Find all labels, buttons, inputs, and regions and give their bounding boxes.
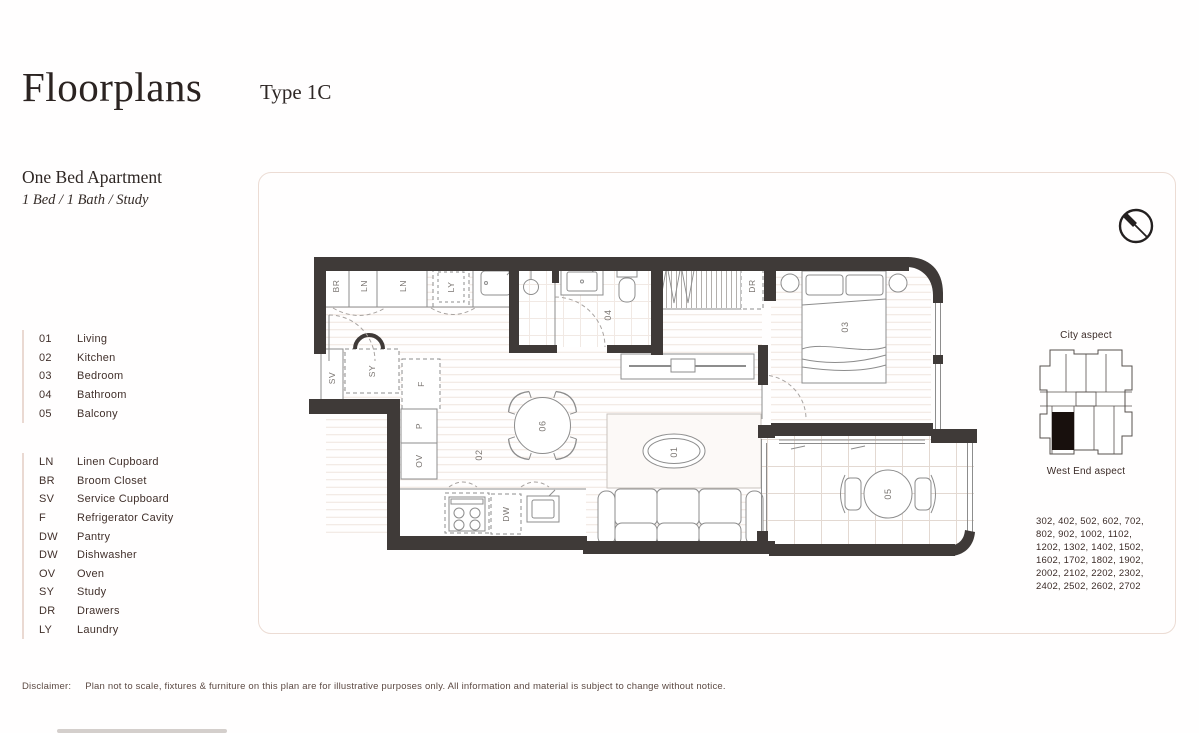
living-label: 01	[669, 446, 679, 457]
disclaimer: Disclaimer:Plan not to scale, fixtures &…	[22, 681, 726, 692]
legend-code: F	[39, 512, 77, 524]
legend-row: BRBroom Closet	[39, 472, 173, 491]
broom-label: BR	[331, 279, 341, 292]
legend-code: SV	[39, 493, 77, 505]
dishwasher-label: DW	[501, 506, 511, 521]
legend-code: DR	[39, 605, 77, 617]
legend-label: Oven	[77, 568, 104, 580]
legend-row: LYLaundry	[39, 620, 173, 639]
legend-row: DWPantry	[39, 527, 173, 546]
legend-row: 04Bathroom	[39, 386, 127, 405]
legend-code: 01	[39, 333, 77, 345]
floorplan-page: Floorplans Type 1C One Bed Apartment 1 B…	[0, 0, 1199, 733]
legend-code: DW	[39, 549, 77, 561]
fixture-legend: LNLinen Cupboard BRBroom Closet SVServic…	[22, 453, 173, 639]
disclaimer-label: Disclaimer:	[22, 681, 71, 692]
room-legend: 01Living 02Kitchen 03Bedroom 04Bathroom …	[22, 330, 127, 423]
kitchen-label: 02	[474, 449, 484, 460]
legend-code: BR	[39, 475, 77, 487]
linen-label: LN	[359, 280, 369, 292]
study-label: SY	[367, 365, 377, 378]
legend-label: Dishwasher	[77, 549, 137, 561]
legend-code: LY	[39, 624, 77, 636]
legend-label: Service Cupboard	[77, 493, 169, 505]
apartment-spec: 1 Bed / 1 Bath / Study	[22, 192, 148, 209]
legend-row: DWDishwasher	[39, 546, 173, 565]
drawers-label: DR	[747, 279, 757, 292]
fridge-label: F	[416, 381, 426, 387]
legend-label: Bathroom	[77, 389, 127, 401]
legend-row: 05Balcony	[39, 404, 127, 423]
laundry-label: LY	[446, 282, 456, 293]
balcony-label: 05	[883, 488, 893, 499]
north-compass-icon	[1115, 205, 1157, 247]
legend-row: 03Bedroom	[39, 367, 127, 386]
building-keyplan	[1036, 346, 1136, 458]
legend-label: Bedroom	[77, 370, 123, 382]
city-aspect-label: City aspect	[1021, 330, 1151, 341]
legend-row: LNLinen Cupboard	[39, 453, 173, 472]
plan-type: Type 1C	[260, 80, 331, 105]
legend-row: OVOven	[39, 565, 173, 584]
legend-label: Drawers	[77, 605, 120, 617]
plan-panel: BR LN LN LY SV SY F P OV 02 DW 04 DR 03 …	[258, 172, 1176, 634]
legend-code: 04	[39, 389, 77, 401]
linen-label: LN	[398, 280, 408, 292]
legend-label: Study	[77, 586, 106, 598]
legend-row: 02Kitchen	[39, 349, 127, 368]
legend-code: 02	[39, 352, 77, 364]
legend-row: FRefrigerator Cavity	[39, 509, 173, 528]
legend-row: DRDrawers	[39, 602, 173, 621]
dining-label: 06	[538, 420, 548, 431]
legend-row: SYStudy	[39, 583, 173, 602]
legend-label: Refrigerator Cavity	[77, 512, 173, 524]
legend-label: Pantry	[77, 531, 110, 543]
legend-row: SVService Cupboard	[39, 490, 173, 509]
legend-code: 05	[39, 408, 77, 420]
legend-code: DW	[39, 531, 77, 543]
legend-label: Linen Cupboard	[77, 456, 159, 468]
legend-label: Balcony	[77, 408, 118, 420]
pantry-label: P	[414, 423, 424, 429]
legend-code: 03	[39, 370, 77, 382]
apartment-numbers: 302, 402, 502, 602, 702, 802, 902, 1002,…	[1036, 515, 1156, 593]
footer-logo-sliver	[57, 729, 227, 733]
legend-label: Kitchen	[77, 352, 115, 364]
legend-label: Living	[77, 333, 107, 345]
legend-code: LN	[39, 456, 77, 468]
highlighted-unit	[1052, 412, 1074, 450]
legend-code: OV	[39, 568, 77, 580]
service-label: SV	[327, 372, 337, 385]
west-end-aspect-label: West End aspect	[1011, 466, 1161, 477]
legend-row: 01Living	[39, 330, 127, 349]
oven-label: OV	[414, 454, 424, 467]
floorplan-svg: BR LN LN LY SV SY F P OV 02 DW 04 DR 03 …	[309, 251, 999, 571]
legend-label: Laundry	[77, 624, 119, 636]
page-title: Floorplans	[22, 63, 202, 111]
apartment-name: One Bed Apartment	[22, 167, 162, 188]
disclaimer-text: Plan not to scale, fixtures & furniture …	[85, 681, 726, 692]
legend-code: SY	[39, 586, 77, 598]
bathroom-label: 04	[603, 309, 613, 320]
bedroom-label: 03	[840, 321, 850, 332]
legend-label: Broom Closet	[77, 475, 147, 487]
